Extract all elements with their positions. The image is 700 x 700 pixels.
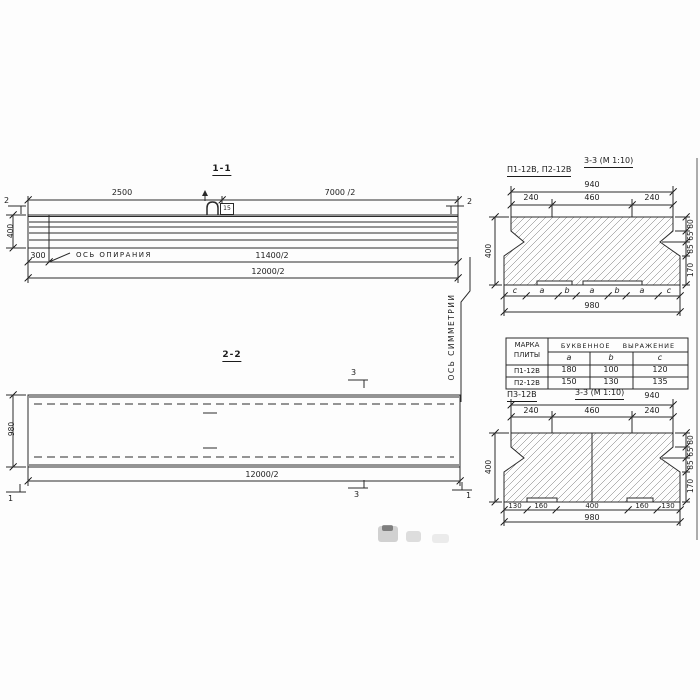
table-row1-b: 100 [603, 365, 618, 375]
table-row1-mark: П1-12В [514, 366, 540, 376]
blueprint-sheet: 1-1 2500 7000 /2 400 2 2 15 300 ОСЬ ОПИР… [0, 0, 700, 700]
section-p1-p2-label: П1-12В, П2-12В [507, 165, 571, 177]
view-1-1-linework [6, 196, 464, 283]
letter-a-3: a [640, 286, 645, 296]
dim-right-85-p3: 85 [686, 455, 696, 475]
dim-bottom-130-1: 130 [508, 501, 521, 511]
table-row2-a: 150 [561, 377, 576, 387]
dim-11400-2: 11400/2 [255, 251, 288, 261]
dim-2500: 2500 [112, 188, 132, 198]
dim-240-right: 240 [644, 193, 659, 203]
dim-7000-2: 7000 /2 [325, 188, 356, 198]
loop-position-tag: 15 [220, 203, 234, 215]
symmetry-axis-label: ОСЬ СИММЕТРИИ [447, 285, 457, 389]
dim-240-left: 240 [523, 193, 538, 203]
section-p3-title: 3-3 (М 1:10) [575, 388, 624, 400]
symmetry-axis-line [461, 257, 470, 402]
table-header-plity: ПЛИТЫ [514, 350, 540, 360]
letter-b-1: b [564, 286, 569, 296]
section-p1-p2-body [504, 217, 680, 285]
dim-400-p3: 400 [484, 455, 494, 479]
table-col-a: a [567, 353, 572, 363]
table-row2-mark: П2-12В [514, 378, 540, 388]
table-row2-b: 130 [603, 377, 618, 387]
dim-right-170-p3: 170 [686, 476, 696, 496]
dim-240-right-p3: 240 [644, 406, 659, 416]
support-axis-label: ОСЬ ОПИРАНИЯ [76, 250, 152, 260]
dim-300: 300 [30, 251, 45, 261]
dim-980-p3: 980 [584, 513, 599, 523]
section-mark-1-left: 1 [8, 494, 13, 504]
section-p3-label: П3-12В [507, 390, 537, 402]
dim-240-left-p3: 240 [523, 406, 538, 416]
dim-right-170: 170 [686, 260, 696, 280]
section-mark-2-right: 2 [467, 197, 472, 207]
section-mark-1-right: 1 [466, 491, 471, 501]
dim-bottom-160-1: 160 [534, 501, 547, 511]
view-2-2-title: 2-2 [222, 350, 241, 362]
table-row1-c: 120 [652, 365, 667, 375]
view-2-2-linework [6, 380, 472, 492]
dim-400-section: 400 [484, 239, 494, 263]
section-mark-3-top: 3 [351, 368, 356, 378]
table-col-b: b [608, 353, 613, 363]
view-1-1-title: 1-1 [212, 164, 231, 176]
dim-940-p3: 940 [644, 391, 659, 401]
dim-right-85: 85 [686, 239, 696, 259]
letter-c-2: c [667, 286, 671, 296]
section-mark-3-bottom: 3 [354, 490, 359, 500]
dim-12000-2-elevation: 12000/2 [251, 267, 284, 277]
table-row2-c: 135 [652, 377, 667, 387]
letter-b-2: b [614, 286, 619, 296]
scan-artifacts [378, 525, 449, 543]
table-col-c: c [658, 353, 662, 363]
letter-c-1: c [513, 286, 517, 296]
lifting-loop-icon [202, 190, 218, 215]
dim-bottom-400: 400 [585, 501, 598, 511]
letter-a-1: a [540, 286, 545, 296]
dim-460-p3: 460 [584, 406, 599, 416]
dim-460: 460 [584, 193, 599, 203]
dim-bottom-160-2: 160 [635, 501, 648, 511]
letter-a-2: a [590, 286, 595, 296]
bottom-groove [583, 281, 642, 285]
table-group-header: БУКВЕННОЕ ВЫРАЖЕНИЕ [561, 341, 675, 351]
dim-980-section: 980 [584, 301, 599, 311]
section-mark-2-left: 2 [4, 196, 9, 206]
table-row1-a: 180 [561, 365, 576, 375]
dim-bottom-130-2: 130 [661, 501, 674, 511]
bottom-groove [537, 281, 572, 285]
dim-940: 940 [584, 180, 599, 190]
dim-400-height: 400 [6, 219, 16, 243]
dim-12000-2-plan: 12000/2 [245, 470, 278, 480]
dim-980-plan: 980 [7, 417, 17, 441]
section-p1-p2-title: 3-3 (М 1:10) [584, 156, 633, 168]
table-header-marka: МАРКА [515, 340, 540, 350]
section-p1-p2-linework [489, 186, 690, 316]
